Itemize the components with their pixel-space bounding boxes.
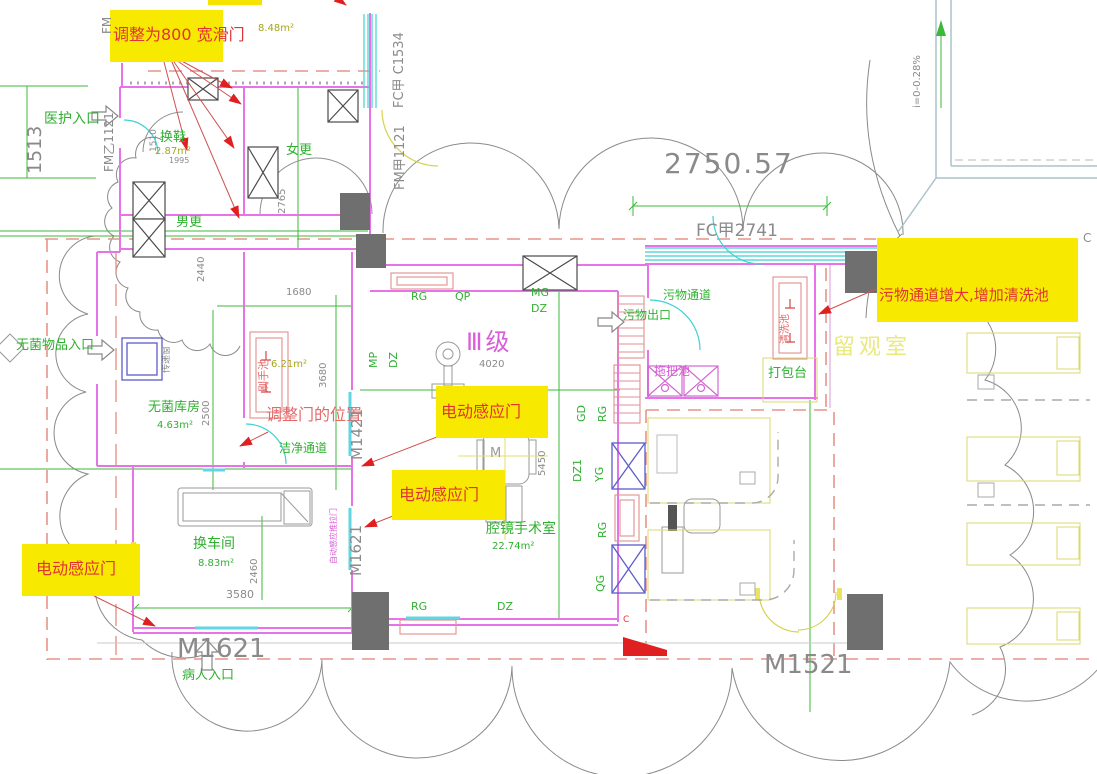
door-code-fc2741: FC甲2741 bbox=[696, 223, 778, 240]
tag-yg: YG bbox=[594, 467, 605, 482]
dim-1510: 1510 bbox=[150, 129, 159, 152]
label-pack-table: 打包台 bbox=[768, 367, 807, 380]
label-men-change: 男更 bbox=[176, 216, 202, 229]
waste-exit-arrow-icon bbox=[598, 312, 624, 332]
dim-1513: 1513 bbox=[26, 126, 45, 174]
faucet-icons bbox=[261, 299, 795, 392]
tag-c-red: C bbox=[623, 616, 629, 625]
door-code-fm: FM bbox=[101, 17, 113, 34]
note-side-door: 自动感应推拉门 bbox=[330, 508, 338, 564]
tag-dz-top: DZ bbox=[531, 303, 547, 314]
highlight-waste-note: 污物通道增大,增加清洗池 bbox=[877, 238, 1078, 322]
tag-rg-bottom: RG bbox=[411, 601, 427, 612]
note-sensor-door-2: 电动感应门 bbox=[399, 487, 479, 503]
tag-qg: QG bbox=[595, 575, 606, 592]
label-patient-entry: 病人入口 bbox=[182, 669, 234, 682]
tag-or-table-m: M bbox=[490, 447, 501, 460]
note-sensor-door-1: 电动感应门 bbox=[441, 404, 521, 420]
area-endo-or: 22.74m² bbox=[492, 542, 534, 552]
highlight-slide-door: 调整为800 宽滑门 bbox=[110, 10, 223, 62]
highlight-sensor-door-2: 电动感应门 bbox=[392, 470, 505, 520]
dim-2440: 2440 bbox=[197, 257, 207, 282]
area-cart-change: 8.83m² bbox=[198, 559, 234, 569]
highlight-sensor-door-1: 电动感应门 bbox=[436, 386, 548, 438]
dim-2750: 2750.57 bbox=[664, 150, 794, 178]
dim-1680: 1680 bbox=[286, 288, 311, 298]
tag-gd: GD bbox=[576, 405, 587, 422]
door-code-fc-c1534: FC甲 C1534 bbox=[393, 32, 406, 108]
note-slide-door: 调整为800 宽滑门 bbox=[113, 27, 245, 43]
door-code-fm-a1121: FM甲1121 bbox=[394, 125, 407, 190]
dim-5450: 5450 bbox=[538, 451, 548, 476]
tag-dz1: DZ1 bbox=[572, 459, 583, 482]
dim-4020: 4020 bbox=[479, 360, 504, 370]
dashed-boundaries bbox=[45, 71, 1095, 660]
tag-dz-left: DZ bbox=[388, 352, 399, 368]
label-pass-window: 传递窗 bbox=[163, 346, 172, 373]
tag-rg-right2: RG bbox=[597, 522, 608, 538]
tag-mg: MG bbox=[531, 287, 549, 298]
partial-highlight-strip bbox=[208, 0, 262, 5]
slope-annotation: i=0-0.28% bbox=[913, 55, 923, 108]
dim-2500: 2500 bbox=[202, 401, 212, 426]
door-code-fm-b1121: FM乙1121 bbox=[103, 112, 115, 172]
label-cart-change: 换车间 bbox=[193, 537, 235, 551]
red-wedge-icon bbox=[623, 637, 667, 656]
label-sterile-store: 无菌库房 bbox=[148, 401, 200, 414]
dim-2460: 2460 bbox=[250, 559, 260, 584]
label-shoe-change: 换鞋 bbox=[160, 131, 186, 144]
label-clean-corridor: 洁净通道 bbox=[279, 442, 327, 454]
tag-rg-right1: RG bbox=[597, 406, 608, 422]
label-endo-or: 腔镜手术室 bbox=[486, 522, 556, 536]
floor-plan: 调整为800 宽滑门 电动感应门 电动感应门 电动感应门 污物通道增大,增加清洗… bbox=[0, 0, 1097, 774]
bedside-squares bbox=[740, 375, 994, 595]
highlight-sensor-door-3: 电动感应门 bbox=[22, 544, 140, 596]
note-waste: 污物通道增大,增加清洗池 bbox=[879, 288, 1049, 303]
door-code-m1621-side: M1621 bbox=[349, 525, 364, 576]
door-code-m1421: M1421 bbox=[350, 409, 365, 460]
label-observation: 留观室 bbox=[833, 337, 911, 359]
plan-linework bbox=[0, 0, 1097, 774]
door-code-m1621: M1621 bbox=[177, 636, 266, 662]
slope-arrow-icon bbox=[936, 20, 946, 36]
label-sterile-goods-entry: 无菌物品入口 bbox=[16, 339, 94, 352]
label-waste-corridor: 污物通道 bbox=[663, 289, 711, 301]
label-c-right: C bbox=[1083, 232, 1091, 244]
area-upper: 8.48m² bbox=[258, 24, 294, 34]
tag-mp: MP bbox=[368, 352, 379, 368]
label-or-class: Ⅲ级 bbox=[466, 330, 513, 354]
dim-1995: 1995 bbox=[169, 157, 189, 165]
tag-qp: QP bbox=[455, 291, 470, 302]
area-sterile-store: 4.63m² bbox=[157, 421, 193, 431]
dim-2765: 2765 bbox=[278, 189, 288, 214]
tag-rg-top: RG bbox=[411, 291, 427, 302]
label-scrub-sink: 刷手池 bbox=[258, 359, 269, 392]
note-sensor-door-3: 电动感应门 bbox=[36, 561, 116, 577]
area-scrub: 6.21m² bbox=[271, 360, 307, 370]
dim-3680: 3680 bbox=[319, 363, 329, 388]
label-women-change: 女更 bbox=[286, 144, 312, 157]
label-mop-sink: 拖把池 bbox=[654, 365, 690, 377]
door-code-m1521: M1521 bbox=[764, 652, 853, 678]
dim-3580: 3580 bbox=[226, 589, 254, 600]
label-wash-sink: 清洗池 bbox=[781, 314, 791, 344]
label-waste-exit: 污物出口 bbox=[623, 309, 671, 321]
label-staff-entry: 医护入口 bbox=[44, 112, 100, 126]
tag-dz-bottom: DZ bbox=[497, 601, 513, 612]
top-right-structure bbox=[898, 0, 1097, 232]
